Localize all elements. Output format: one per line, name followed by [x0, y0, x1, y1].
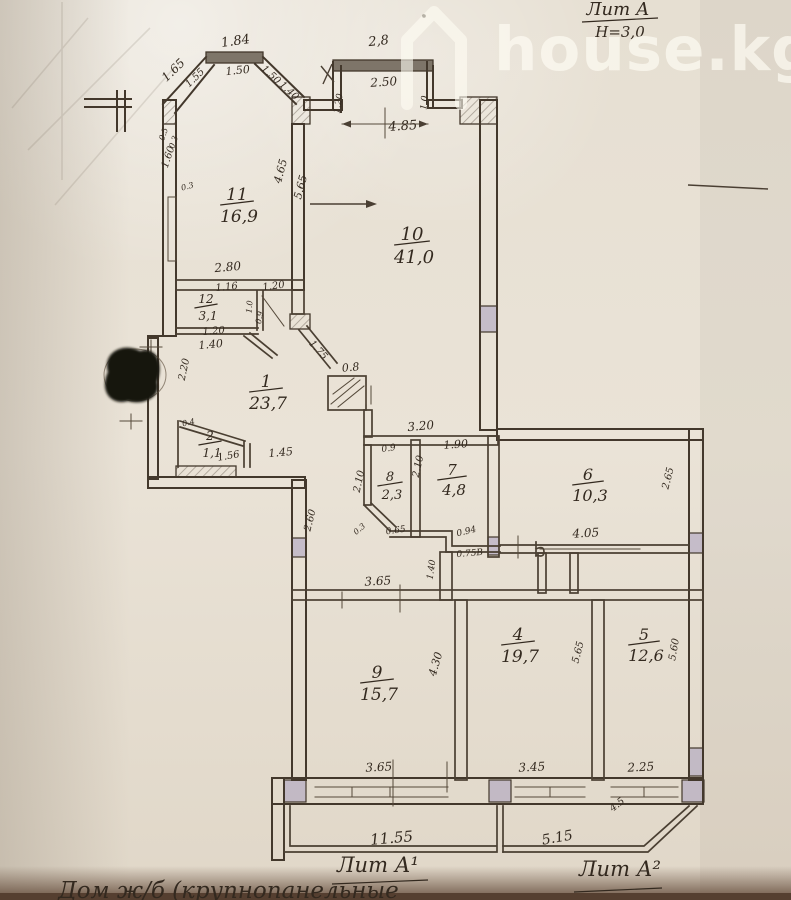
- dimension-label: 0.8: [341, 360, 360, 375]
- dimension-label: 3.20: [407, 418, 435, 434]
- svg-text:3,1: 3,1: [198, 309, 217, 323]
- svg-text:19,7: 19,7: [501, 647, 539, 667]
- dimension-label: 0.9: [381, 443, 397, 455]
- dimension-label: 3.65: [365, 759, 392, 774]
- dimension-label: 2.80: [213, 259, 242, 275]
- dimension-label: 1.50: [225, 63, 251, 78]
- dimension-label: 4.05: [571, 525, 599, 540]
- bottom-note: Дом ж/б (крупнопанельные: [57, 878, 399, 900]
- svg-text:10,3: 10,3: [572, 486, 608, 505]
- svg-text:41,0: 41,0: [393, 247, 434, 268]
- ink-blob: [104, 348, 166, 403]
- svg-text:8: 8: [386, 470, 394, 485]
- dimension-label: 1.45: [268, 445, 294, 460]
- dimension-label: 11.55: [369, 827, 413, 849]
- svg-text:7: 7: [447, 461, 457, 479]
- svg-text:4,8: 4,8: [441, 481, 466, 499]
- dimension-label: 3.65: [364, 573, 391, 588]
- dimension-label: 1.90: [443, 437, 468, 452]
- dimension-label: 1.0: [419, 95, 430, 111]
- svg-text:16,9: 16,9: [220, 207, 258, 227]
- svg-text:12: 12: [198, 292, 213, 306]
- dimension-label: 3.45: [518, 759, 545, 774]
- dimension-label: 2,8: [367, 33, 390, 50]
- svg-text:6: 6: [583, 465, 593, 484]
- dimension-label: 2.25: [626, 759, 654, 774]
- dimension-label: 4.85: [387, 118, 418, 135]
- liter-a2-label: Лит А²: [578, 857, 661, 881]
- liter-a1-label: Лит А¹: [336, 853, 419, 877]
- dimension-label: 1.20: [202, 325, 226, 338]
- dimension-label: 2.50: [369, 74, 398, 90]
- svg-text:15,7: 15,7: [360, 685, 398, 705]
- watermark-text: house.kg: [494, 14, 791, 85]
- dimension-label: 1.40: [198, 337, 224, 352]
- dimension-label: 1.0: [244, 300, 254, 313]
- svg-text:23,7: 23,7: [248, 394, 287, 414]
- svg-text:12,6: 12,6: [628, 646, 664, 665]
- svg-text:2,3: 2,3: [381, 488, 403, 503]
- svg-text:5: 5: [639, 625, 649, 644]
- svg-text:2: 2: [205, 429, 214, 443]
- floorplan-photo: Лит А Н=3,0 1116,91041,0123,1123,721,182…: [0, 0, 791, 900]
